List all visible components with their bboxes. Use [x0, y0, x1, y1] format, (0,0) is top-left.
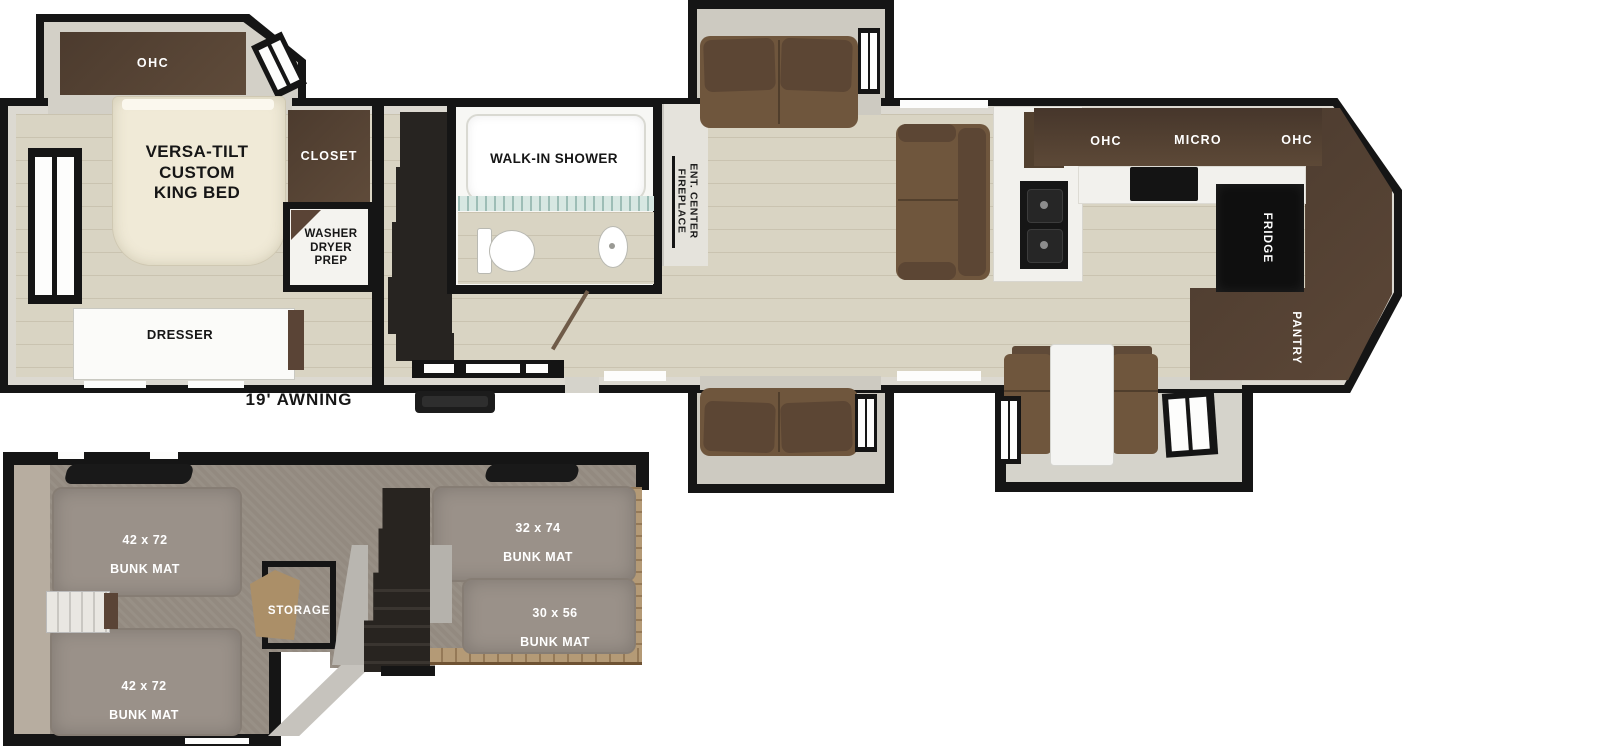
bunk-mat-4-label: 30 x 56 BUNK MAT — [485, 591, 625, 665]
shower-glass — [458, 196, 654, 211]
bunk-mat-2-size: 42 x 72 — [74, 679, 214, 694]
loft-stair-wall-right — [430, 545, 452, 623]
kitchen-sink — [1020, 181, 1068, 269]
closet-label: CLOSET — [289, 149, 369, 164]
floorplan-diagram: OHC VERSA-TILT CUSTOM KING BED CLOSET WA… — [0, 0, 1600, 748]
skylight-left — [64, 464, 195, 484]
kitchen-ohc-left-label: OHC — [1076, 134, 1136, 149]
dinette-window-left — [997, 396, 1021, 464]
sofa-right — [896, 124, 990, 280]
loft-stair-bottom-wall — [381, 666, 435, 676]
loft-floor-edge-strip — [14, 465, 50, 734]
bunk-mat-2-label: 42 x 72 BUNK MAT — [74, 664, 214, 738]
sofa-top — [700, 36, 858, 128]
bedroom-bottom-window-1 — [84, 381, 146, 388]
toilet-bowl — [489, 230, 535, 272]
bunk-mat-1-text: BUNK MAT — [75, 562, 215, 577]
bunk-mat-1-label: 42 x 72 BUNK MAT — [75, 518, 215, 592]
bunk-ladder-end — [104, 593, 118, 629]
loft-wall-right-top — [636, 452, 649, 490]
bedroom-ohc-label: OHC — [93, 56, 213, 71]
sink-drain — [609, 243, 615, 249]
loft-vent-1 — [58, 452, 84, 459]
storage-label: STORAGE — [254, 605, 344, 619]
bunk-mat-3-label: 32 x 74 BUNK MAT — [468, 506, 608, 580]
ent-center-label: ENT. CENTER FIREPLACE — [675, 163, 700, 238]
loft-vent-2 — [150, 452, 178, 459]
shower-label: WALK-IN SHOWER — [469, 151, 639, 167]
dresser — [73, 308, 295, 380]
bedroom-wall — [372, 100, 384, 393]
kitchen-micro-label: MICRO — [1158, 133, 1238, 148]
bunk-mat-4-size: 30 x 56 — [485, 606, 625, 621]
living-bottom-window-2 — [897, 371, 981, 381]
entry-landing — [412, 360, 564, 378]
skylight-right — [484, 464, 580, 482]
loft-vent-3 — [185, 738, 249, 744]
entry-step — [415, 391, 495, 413]
cooktop — [1130, 167, 1198, 201]
top-wall-window — [900, 100, 988, 108]
washer-dryer-label: WASHER DRYER PREP — [291, 228, 371, 269]
dresser-end-cabinet — [288, 310, 304, 370]
king-bed-label: VERSA-TILT CUSTOM KING BED — [117, 142, 277, 204]
bunk-mat-3-text: BUNK MAT — [468, 550, 608, 565]
dresser-label: DRESSER — [110, 327, 250, 342]
bunk-mat-3-size: 32 x 74 — [468, 521, 608, 536]
entry-doorway — [565, 377, 599, 393]
awning-label: 19' AWNING — [214, 390, 384, 410]
kitchen-ohc-right-label: OHC — [1267, 133, 1327, 148]
fridge-label: FRIDGE — [1259, 213, 1273, 264]
bunk-mat-2-text: BUNK MAT — [74, 708, 214, 723]
bunk-ladder — [46, 591, 110, 633]
dinette-window-right — [1162, 390, 1218, 457]
living-bottom-window-1 — [604, 371, 666, 381]
bed-pillows — [122, 99, 274, 110]
bedroom-bottom-window-2 — [188, 381, 244, 388]
loft-wall-left — [3, 452, 14, 746]
bottom-slide-window — [855, 394, 877, 452]
dinette-table — [1050, 344, 1114, 466]
bunk-mat-4-text: BUNK MAT — [485, 635, 625, 650]
sofa-bottom — [700, 388, 858, 456]
pantry-label: PANTRY — [1288, 311, 1302, 364]
top-slide-window — [858, 28, 880, 94]
bunk-mat-1-size: 42 x 72 — [75, 533, 215, 548]
dinette-bench-right — [1112, 354, 1158, 454]
bedroom-left-window — [28, 148, 82, 304]
